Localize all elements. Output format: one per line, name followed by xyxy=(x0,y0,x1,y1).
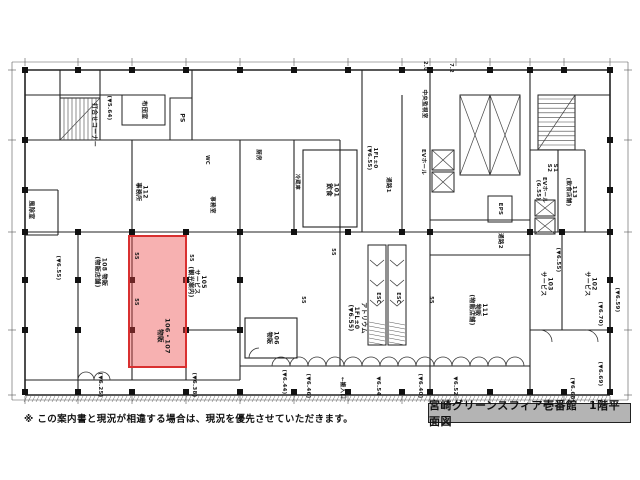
disclaimer-note: ※ この案内書と現況が相違する場合は、現況を優先させていただきます。 xyxy=(24,411,353,425)
drawing-title-box: 宮崎グリーンスフィア壱番館 1階平面図 xyxy=(428,403,631,423)
highlighted-unit-106-107 xyxy=(128,235,187,368)
floorplan-page: { "title_box": { "text": "宮崎グリーンスフィア壱番館 … xyxy=(0,0,640,480)
